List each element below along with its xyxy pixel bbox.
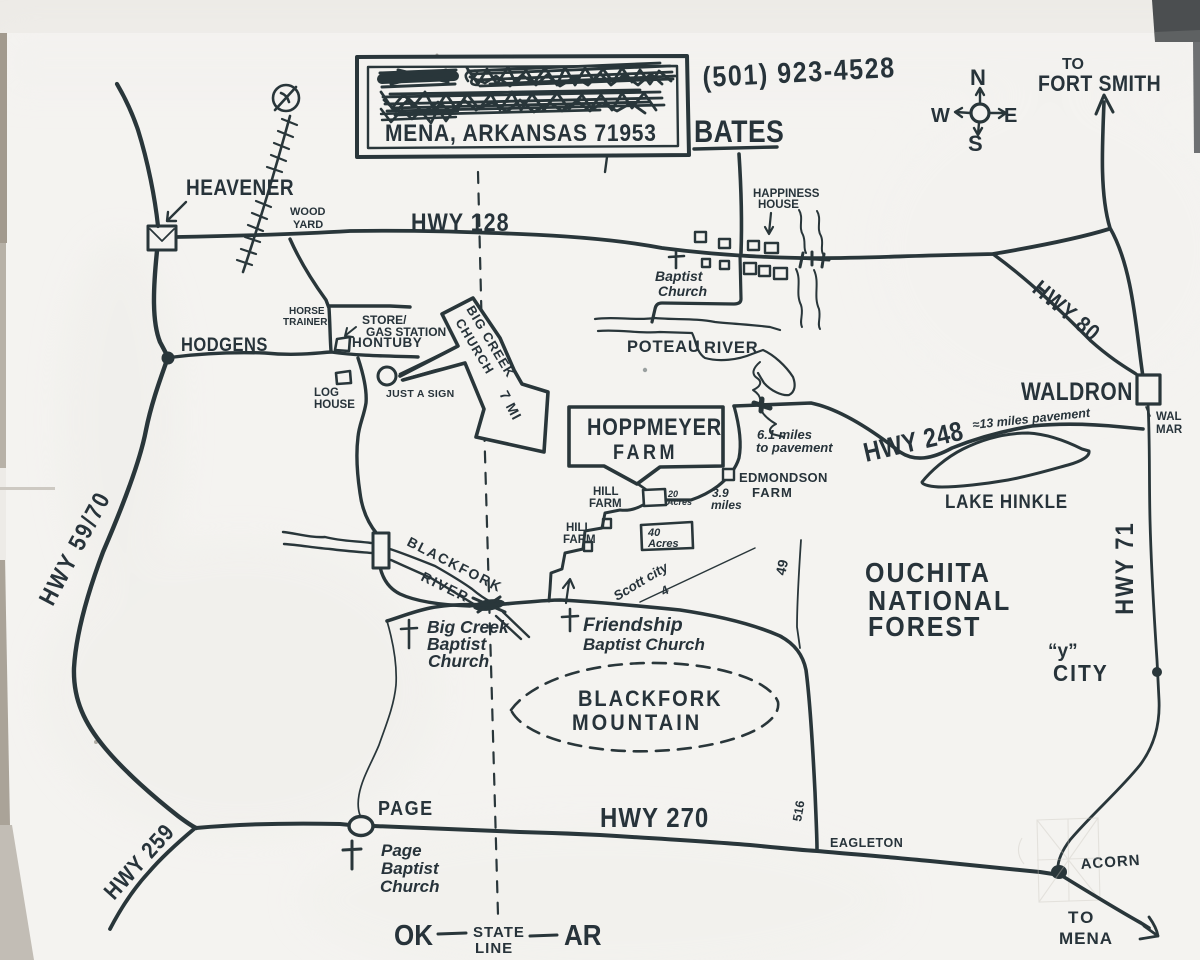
svg-text:E: E <box>1004 105 1017 127</box>
svg-text:TO: TO <box>1068 908 1095 927</box>
svg-text:CITY: CITY <box>1053 660 1109 686</box>
svg-text:HOUSE: HOUSE <box>314 399 355 411</box>
svg-text:Baptist: Baptist <box>381 859 440 878</box>
svg-text:HOUSE: HOUSE <box>758 199 799 211</box>
svg-text:W: W <box>931 105 950 127</box>
svg-text:S: S <box>968 131 983 156</box>
svg-text:EDMONDSON: EDMONDSON <box>739 470 828 485</box>
svg-text:Church: Church <box>380 877 440 896</box>
svg-text:JUST A SIGN: JUST A SIGN <box>386 388 454 400</box>
svg-text:Church: Church <box>428 651 489 671</box>
svg-text:Baptist Church: Baptist Church <box>583 635 705 654</box>
svg-text:OUCHITA: OUCHITA <box>865 557 991 589</box>
svg-text:Page: Page <box>381 841 422 860</box>
svg-text:HORSE: HORSE <box>289 306 325 317</box>
svg-text:AR: AR <box>564 919 602 951</box>
svg-text:LOG: LOG <box>314 387 339 399</box>
svg-text:HWY 128: HWY 128 <box>411 208 510 236</box>
svg-text:MENA, ARKANSAS 71953: MENA, ARKANSAS 71953 <box>385 120 657 147</box>
svg-text:FORT SMITH: FORT SMITH <box>1038 72 1161 97</box>
svg-text:TO: TO <box>1062 56 1084 73</box>
svg-text:PAGE: PAGE <box>378 797 434 820</box>
svg-text:TRAINER: TRAINER <box>283 317 328 328</box>
svg-text:WOOD: WOOD <box>290 206 325 218</box>
svg-text:N: N <box>970 65 986 90</box>
svg-text:HILL: HILL <box>593 486 619 498</box>
svg-text:HWY 270: HWY 270 <box>600 804 709 834</box>
svg-text:“y”: “y” <box>1048 641 1078 662</box>
svg-text:MOUNTAIN: MOUNTAIN <box>572 711 702 735</box>
svg-text:WALDRON: WALDRON <box>1021 377 1133 405</box>
svg-text:BLACKFORK: BLACKFORK <box>578 687 723 711</box>
svg-text:FARM: FARM <box>613 441 678 465</box>
svg-text:MENA: MENA <box>1059 929 1113 948</box>
svg-text:YARD: YARD <box>293 219 323 231</box>
svg-text:HONTUBY: HONTUBY <box>352 335 422 350</box>
svg-text:HILL: HILL <box>566 522 592 534</box>
svg-text:HWY 71: HWY 71 <box>1112 521 1140 614</box>
svg-text:LAKE HINKLE: LAKE HINKLE <box>945 490 1068 512</box>
svg-text:RIVER: RIVER <box>704 339 758 357</box>
svg-text:FOREST: FOREST <box>868 611 981 643</box>
svg-text:STATE: STATE <box>473 924 525 941</box>
svg-text:Church: Church <box>658 283 707 299</box>
svg-text:EAGLETON: EAGLETON <box>830 836 903 850</box>
svg-text:HEAVENER: HEAVENER <box>186 176 294 201</box>
svg-text:LINE: LINE <box>475 940 513 957</box>
svg-text:HOPPMEYER: HOPPMEYER <box>587 413 722 440</box>
svg-text:WAL: WAL <box>1156 411 1182 423</box>
svg-text:OK: OK <box>394 919 433 951</box>
svg-text:Friendship: Friendship <box>583 614 683 636</box>
svg-text:miles: miles <box>711 498 742 512</box>
svg-text:BATES: BATES <box>694 115 784 150</box>
svg-text:POTEAU: POTEAU <box>627 338 701 356</box>
svg-text:Baptist: Baptist <box>655 268 704 284</box>
svg-text:MAR: MAR <box>1156 424 1183 436</box>
svg-text:FARM: FARM <box>589 498 622 510</box>
svg-text:FARM: FARM <box>752 485 793 500</box>
svg-text:to pavement: to pavement <box>756 440 833 455</box>
svg-text:Acres: Acres <box>647 538 679 550</box>
